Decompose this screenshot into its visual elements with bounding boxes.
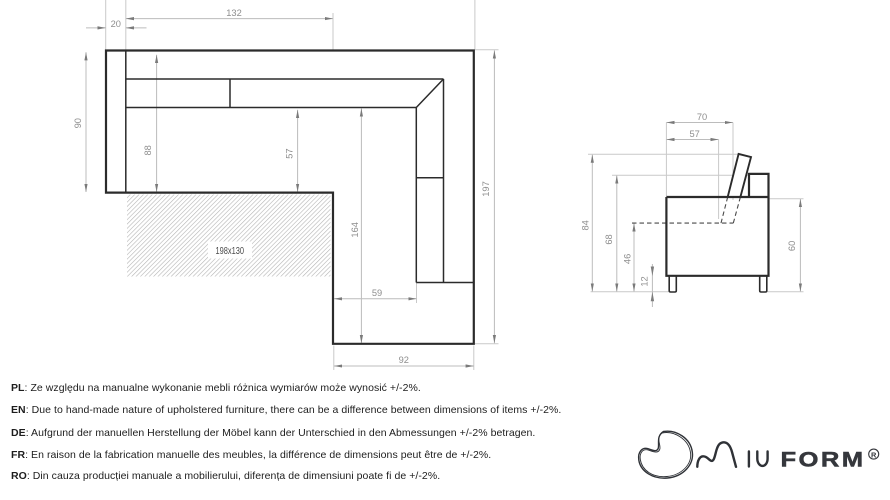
svg-text:90: 90 <box>73 118 83 128</box>
svg-text:70: 70 <box>697 112 707 122</box>
svg-text:60: 60 <box>787 241 797 251</box>
svg-text:84: 84 <box>581 220 591 230</box>
svg-text:FORM: FORM <box>781 448 866 472</box>
svg-text:197: 197 <box>481 181 491 197</box>
svg-text:59: 59 <box>372 288 382 298</box>
svg-text:46: 46 <box>622 254 632 264</box>
svg-text:132: 132 <box>226 8 242 18</box>
svg-text:20: 20 <box>111 19 121 29</box>
svg-text:12: 12 <box>639 276 649 286</box>
svg-text:92: 92 <box>399 355 409 365</box>
svg-text:R: R <box>871 450 877 459</box>
svg-text:57: 57 <box>690 129 700 139</box>
svg-text:68: 68 <box>604 234 614 244</box>
svg-text:88: 88 <box>143 145 153 155</box>
svg-text:164: 164 <box>350 222 360 238</box>
svg-text:198x130: 198x130 <box>216 246 245 257</box>
svg-text:57: 57 <box>285 148 295 158</box>
